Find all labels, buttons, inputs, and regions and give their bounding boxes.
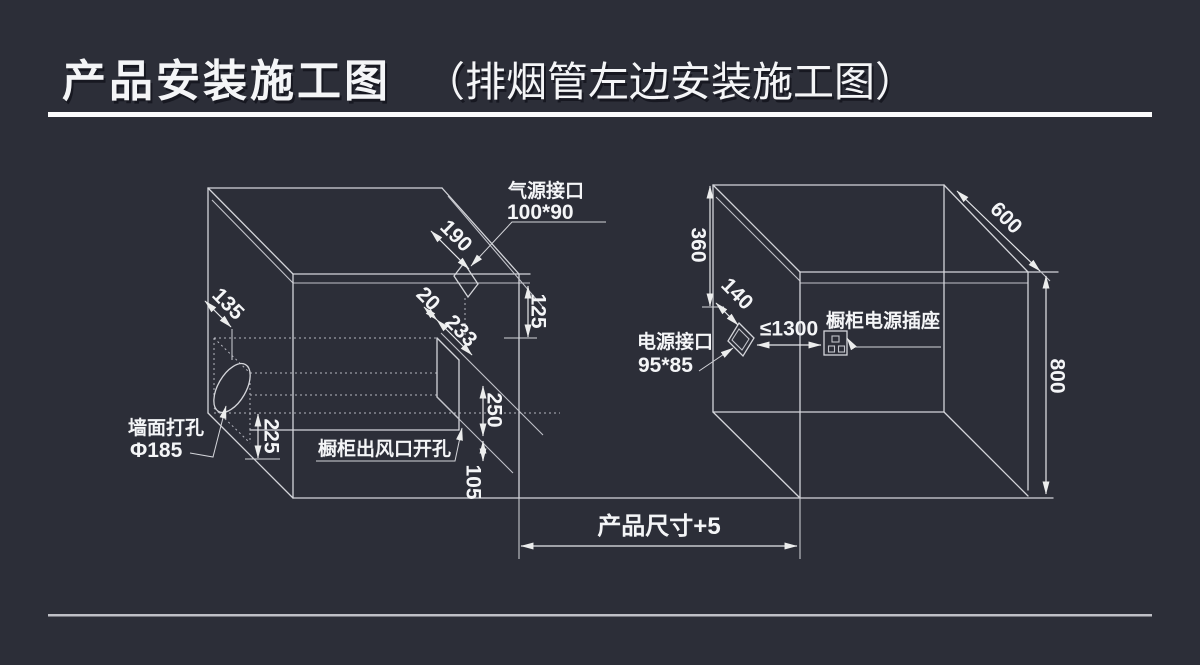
dim-250-value: 250 bbox=[483, 392, 506, 427]
page-title-main: 产品安装施工图 bbox=[62, 57, 391, 106]
right-cabinet-dimensions: 360 140 ≤1300 600 800 bbox=[687, 186, 1069, 494]
gas-port-leader bbox=[471, 222, 606, 266]
title-rule bbox=[48, 112, 1152, 117]
product-size-value: 产品尺寸+5 bbox=[597, 512, 720, 540]
dim-105-value: 105 bbox=[462, 464, 485, 499]
wall-hole-label-line1: 墙面打孔 bbox=[128, 416, 204, 439]
wall-hole-label-line2: Φ185 bbox=[130, 439, 183, 462]
dim-125-value: 125 bbox=[527, 293, 550, 328]
dim-360-value: 360 bbox=[687, 227, 710, 262]
socket-label: 橱柜电源插座 bbox=[825, 309, 940, 332]
socket-leader bbox=[847, 338, 941, 347]
dim-800-value: 800 bbox=[1046, 358, 1069, 393]
dim-135-value: 135 bbox=[207, 283, 248, 324]
dim-600-value: 600 bbox=[985, 197, 1026, 238]
gas-port-label-line2: 100*90 bbox=[507, 201, 574, 224]
power-port-marker bbox=[728, 323, 754, 356]
dim-233-value: 233 bbox=[440, 310, 481, 351]
dim-140-value: 140 bbox=[716, 273, 757, 314]
page-title-paren: （排烟管左边安装施工图） bbox=[424, 59, 916, 105]
gas-port-label-line1: 气源接口 bbox=[507, 179, 584, 202]
dim-225-value: 225 bbox=[260, 418, 283, 453]
dim-20-value: 20 bbox=[412, 283, 445, 316]
power-port-label-line2: 95*85 bbox=[638, 354, 693, 377]
installation-diagram-page: 产品安装施工图 （排烟管左边安装施工图） bbox=[0, 0, 1200, 665]
power-port-label-line1: 电源接口 bbox=[637, 330, 713, 353]
installation-diagram: 产品安装施工图 （排烟管左边安装施工图） bbox=[0, 0, 1200, 665]
outlet-label: 橱柜出风口开孔 bbox=[317, 437, 451, 460]
power-socket-icon bbox=[824, 331, 847, 355]
footer-rule bbox=[48, 614, 1152, 617]
product-size-dimension: 产品尺寸+5 bbox=[519, 498, 800, 559]
dim-1300-value: ≤1300 bbox=[760, 318, 818, 341]
